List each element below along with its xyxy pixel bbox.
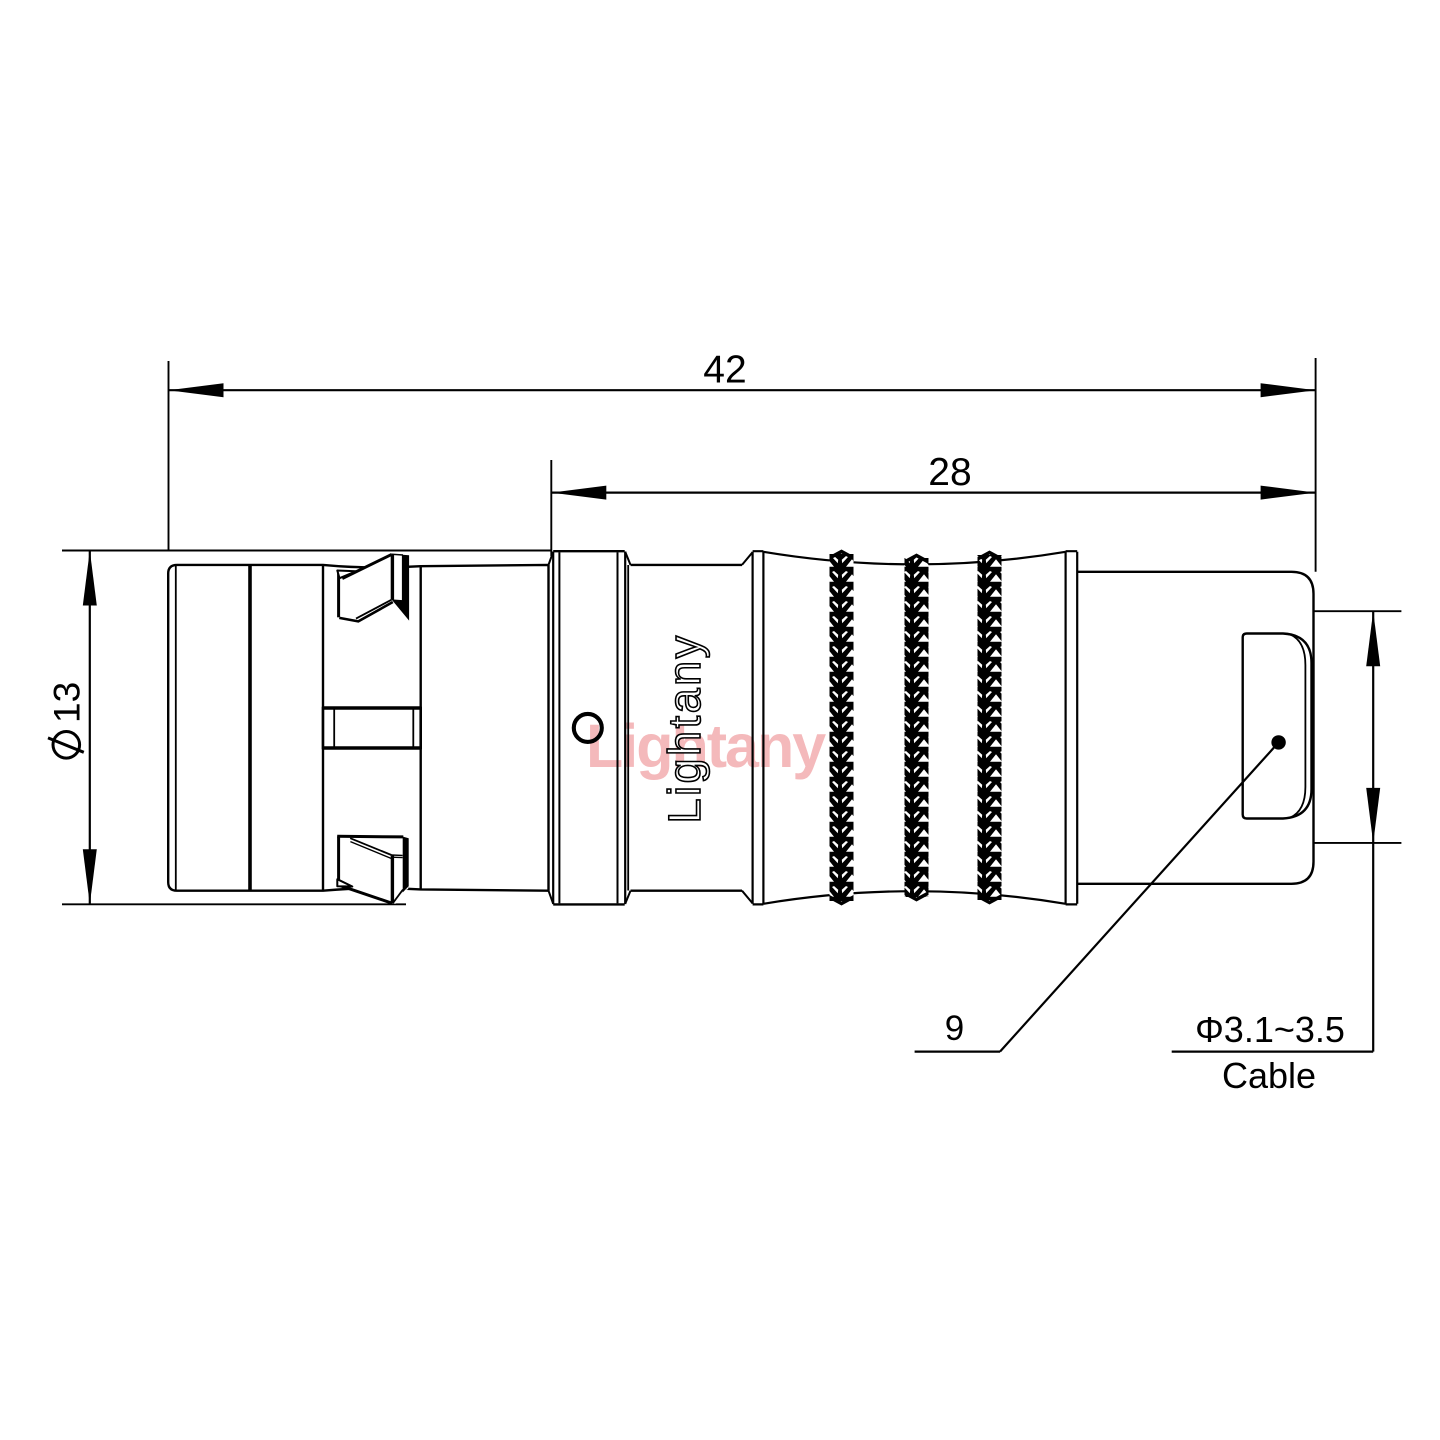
svg-text:Φ3.1~3.5: Φ3.1~3.5 xyxy=(1195,1009,1345,1050)
svg-text:13: 13 xyxy=(47,682,88,723)
svg-text:42: 42 xyxy=(703,349,746,392)
svg-text:Cable: Cable xyxy=(1222,1055,1316,1096)
svg-text:28: 28 xyxy=(928,451,971,494)
svg-text:Lightany: Lightany xyxy=(659,633,710,823)
svg-text:9: 9 xyxy=(945,1009,964,1048)
